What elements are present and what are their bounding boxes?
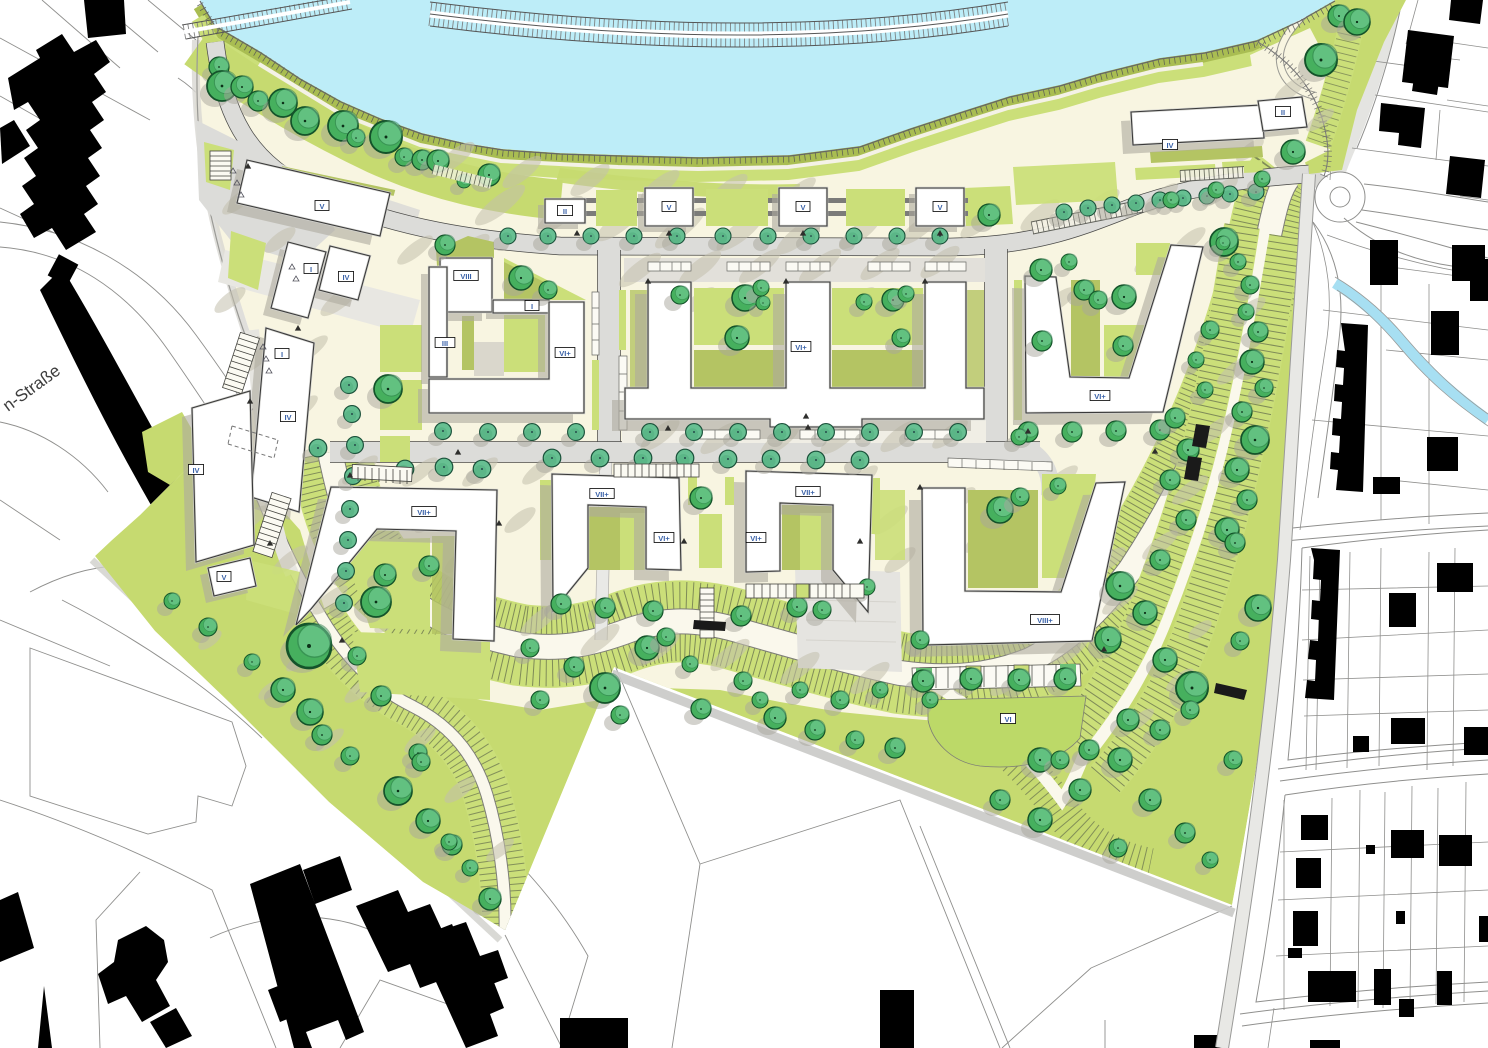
svg-text:V: V: [937, 203, 942, 212]
svg-text:I: I: [281, 350, 283, 359]
svg-text:IV: IV: [284, 413, 291, 422]
svg-text:VI: VI: [1004, 715, 1011, 724]
svg-text:VIII+: VIII+: [1037, 616, 1053, 625]
svg-text:VII+: VII+: [595, 490, 609, 499]
svg-text:IV: IV: [1166, 141, 1173, 150]
svg-text:VI+: VI+: [1094, 392, 1106, 401]
svg-text:VIII: VIII: [460, 272, 471, 281]
svg-text:VI+: VI+: [658, 534, 670, 543]
svg-text:V: V: [221, 573, 226, 582]
svg-text:II: II: [563, 207, 567, 216]
svg-text:I: I: [310, 265, 312, 274]
svg-text:I: I: [531, 302, 533, 311]
svg-text:VI+: VI+: [750, 534, 762, 543]
svg-text:V: V: [319, 202, 324, 211]
svg-text:III: III: [442, 339, 448, 348]
svg-text:VI+: VI+: [559, 349, 571, 358]
svg-text:VII+: VII+: [801, 488, 815, 497]
svg-text:V: V: [666, 203, 671, 212]
svg-text:V: V: [800, 203, 805, 212]
svg-text:VII+: VII+: [417, 508, 431, 517]
svg-text:II: II: [1281, 108, 1285, 117]
svg-text:VI+: VI+: [795, 343, 807, 352]
svg-text:IV: IV: [342, 273, 349, 282]
svg-text:IV: IV: [192, 466, 199, 475]
